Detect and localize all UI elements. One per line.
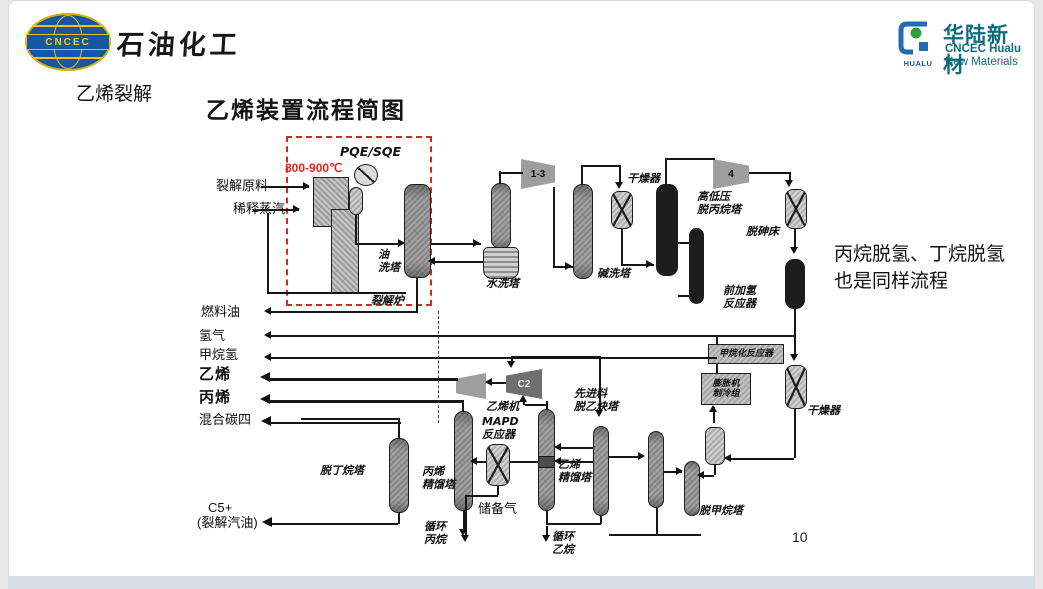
flow-line (398, 513, 400, 524)
propylene-tower-label: 丙烯 精馏塔 (422, 465, 455, 491)
flow-line (621, 229, 623, 265)
flow-arrowhead (293, 205, 300, 213)
front-hydrogenation-label: 前加氢 反应器 (723, 284, 756, 310)
flow-line (268, 400, 464, 403)
temperature-annotation: 800-900℃ (285, 161, 343, 175)
flow-line (355, 243, 402, 245)
booster-compressor (456, 373, 486, 399)
flow-arrowhead (676, 467, 683, 475)
flow-line (511, 356, 601, 358)
flow-arrowhead (709, 405, 717, 412)
flow-arrowhead (697, 471, 704, 479)
flow-arrowhead (260, 394, 270, 404)
section-divider-dashed-line (438, 311, 439, 423)
flow-arrowhead (261, 416, 271, 426)
flow-line (431, 261, 483, 263)
flow-arrowhead (398, 239, 405, 247)
flow-line (267, 292, 406, 294)
recycle-ethane-label: 循环 乙烷 (552, 530, 574, 556)
flow-line (714, 465, 716, 475)
flow-line (716, 364, 718, 373)
flow-arrowhead (507, 361, 515, 368)
flow-line (398, 418, 400, 438)
fuel-oil-label: 燃料油 (201, 304, 240, 320)
depropanizer-column-1 (656, 184, 678, 276)
process-flow-diagram: 800-900℃ PQE/SQE 1-3 4 甲烷化反应器 膨胀机 制冷组 C2 (9, 1, 1034, 576)
ethylene-product-label: 乙烯 (199, 366, 231, 385)
hydrogen-label: 氢气 (199, 328, 225, 344)
flow-arrowhead (724, 454, 731, 462)
window-bottom-strip (8, 577, 1035, 589)
flow-arrowhead (554, 457, 561, 465)
flow-line (497, 486, 499, 495)
flow-line (716, 336, 718, 344)
flow-arrowhead (428, 257, 435, 265)
flow-line (678, 242, 689, 244)
flow-arrowhead (790, 247, 798, 254)
dryer-2-vessel (785, 365, 807, 409)
flow-line (678, 295, 689, 297)
flow-arrowhead (470, 457, 477, 465)
front-hydrogenation-reactor (785, 259, 805, 309)
flow-line (355, 215, 357, 244)
flow-arrowhead (264, 307, 271, 315)
flow-line (465, 495, 498, 497)
flow-line (510, 461, 538, 463)
furnace-label: 裂解炉 (371, 294, 404, 307)
flow-line (553, 187, 555, 267)
flow-arrowhead (646, 260, 653, 268)
flow-arrowhead (264, 353, 271, 361)
flow-line (499, 171, 501, 184)
flow-line (557, 461, 593, 463)
flow-line (525, 404, 547, 406)
flow-line (665, 158, 667, 185)
flow-line (599, 356, 601, 414)
flow-arrowhead (785, 180, 793, 187)
flow-arrowhead (519, 395, 527, 402)
flow-line (609, 534, 701, 536)
mixed-c4-label: 混合碳四 (199, 412, 251, 428)
flow-line (794, 309, 796, 358)
flow-arrowhead (260, 372, 270, 382)
mapd-reactor-vessel (486, 444, 510, 486)
flow-line (546, 511, 548, 523)
cracked-gas-compressor-1-3: 1-3 (521, 159, 555, 189)
flow-line (557, 447, 593, 449)
flow-line (581, 166, 583, 185)
flow-line (546, 523, 601, 525)
compressor-stage-4: 4 (713, 159, 749, 189)
dearsenic-bed-vessel (785, 189, 807, 229)
mapd-reactor-label: MAPD 反应器 (482, 415, 519, 441)
quench-exchanger (354, 164, 378, 186)
flow-line (581, 165, 621, 167)
flow-line (665, 158, 715, 160)
flow-arrowhead (790, 354, 798, 361)
flow-arrowhead (554, 443, 561, 451)
flow-arrowhead (565, 262, 572, 270)
flow-line (301, 418, 399, 420)
pqe-sqe-label: PQE/SQE (340, 144, 401, 159)
c5-gasoline-label: (裂解汽油) (197, 515, 258, 531)
cold-separator-vessel (705, 427, 725, 465)
propylene-product-label: 丙烯 (199, 389, 231, 408)
recycle-propane-label: 循环 丙烷 (424, 520, 446, 546)
flow-line (727, 458, 794, 460)
flow-line (794, 409, 796, 458)
flow-line (268, 311, 418, 313)
flow-line (268, 422, 401, 424)
dryer-1-vessel (611, 191, 633, 229)
flow-line (268, 378, 458, 381)
dryer-1-label: 干燥器 (627, 172, 660, 185)
flow-line (600, 516, 602, 524)
ethylene-fractionator-column (538, 409, 555, 511)
flow-arrowhead (638, 452, 645, 460)
dearsenic-bed-label: 脱砷床 (746, 225, 779, 238)
flow-arrowhead (461, 535, 469, 542)
methane-hydrogen-label: 甲烷氢 (199, 347, 238, 363)
c5-label: C5+ (208, 500, 232, 516)
cold-section-column (648, 431, 664, 508)
demethanizer-label: 脱甲烷塔 (699, 504, 743, 517)
flow-arrowhead (303, 182, 310, 190)
depropanizer-label: 高低压 脱丙烷塔 (697, 190, 741, 216)
flow-line (261, 186, 309, 188)
oil-wash-column (404, 184, 431, 278)
flow-line (462, 401, 464, 411)
water-wash-label: 水洗塔 (486, 277, 519, 290)
demethanizer-column (684, 461, 700, 516)
caustic-wash-label: 碱洗塔 (597, 267, 630, 280)
oil-wash-label: 油 洗塔 (378, 248, 400, 274)
flow-arrowhead (262, 517, 272, 527)
expander-unit-box: 膨胀机 制冷组 (701, 373, 751, 405)
flow-arrowhead (595, 410, 603, 417)
methanation-reactor-box: 甲烷化反应器 (708, 344, 784, 364)
flow-line (501, 172, 523, 174)
flow-line (416, 278, 418, 312)
flow-arrowhead (485, 378, 492, 386)
flow-line (546, 401, 548, 409)
ethylene-compressor-label: 乙烯机 (486, 400, 519, 413)
flow-arrowhead (473, 239, 480, 247)
flow-line (267, 213, 269, 293)
caustic-wash-column (573, 184, 593, 279)
water-wash-column (491, 183, 511, 249)
quench-drum (349, 187, 363, 215)
flow-arrowhead (615, 182, 623, 189)
flow-line (749, 172, 791, 174)
flow-line (268, 357, 717, 359)
depropanizer-column-2 (689, 228, 704, 304)
deacetylene-column (593, 426, 609, 516)
dryer-2-label: 干燥器 (807, 404, 840, 417)
water-wash-column-base (483, 247, 519, 279)
flow-arrowhead (264, 331, 271, 339)
debutanizer-column (389, 438, 409, 513)
flow-arrowhead (542, 535, 550, 542)
flow-line (268, 523, 398, 525)
slide: CNCEC 石油化工 HUALU 华陆新材 CNCEC Hualu New Ma… (8, 0, 1035, 577)
flow-line (656, 508, 658, 534)
storage-gas-label: 储备气 (478, 501, 517, 517)
debutanizer-label: 脱丁烷塔 (320, 464, 364, 477)
